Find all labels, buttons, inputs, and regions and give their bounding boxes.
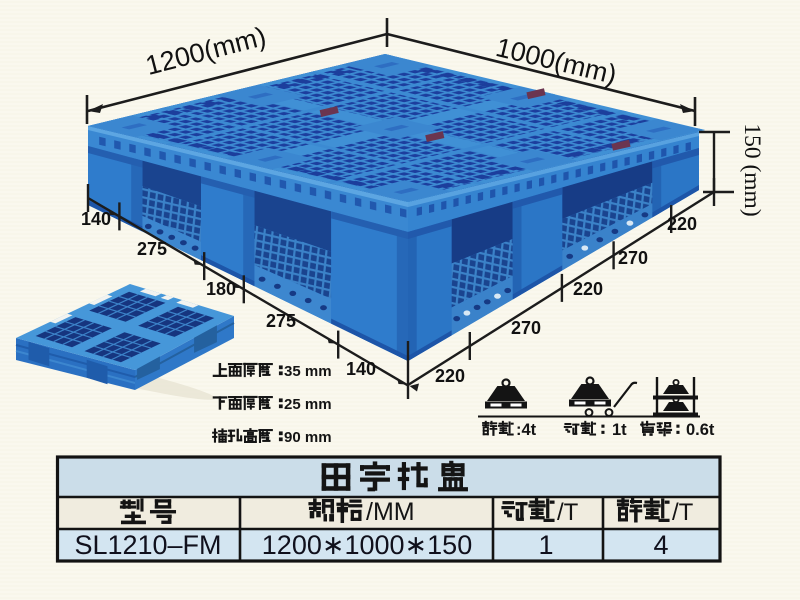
svg-text:275: 275 (266, 311, 296, 331)
svg-text:220: 220 (573, 279, 603, 299)
svg-text:220: 220 (435, 366, 465, 386)
svg-text:1t: 1t (612, 421, 627, 439)
svg-text:220: 220 (667, 214, 697, 234)
svg-text:/T: /T (557, 499, 579, 526)
svg-text::4t: :4t (516, 421, 537, 439)
svg-text:275: 275 (137, 239, 167, 259)
svg-text:25 mm: 25 mm (284, 396, 332, 413)
svg-text:270: 270 (511, 318, 541, 338)
svg-text:140: 140 (346, 359, 376, 379)
svg-text:90 mm: 90 mm (284, 429, 332, 446)
svg-text:/T: /T (672, 499, 694, 526)
svg-text:140: 140 (81, 209, 111, 229)
svg-text:/MM: /MM (366, 498, 415, 526)
svg-text:35 mm: 35 mm (284, 363, 332, 380)
svg-text:4: 4 (653, 530, 668, 560)
svg-text:1: 1 (538, 530, 553, 560)
svg-text:270: 270 (618, 248, 648, 268)
svg-text:180: 180 (206, 279, 236, 299)
svg-text:1200∗1000∗150: 1200∗1000∗150 (262, 530, 472, 560)
svg-text:SL1210–FM: SL1210–FM (74, 530, 221, 560)
svg-text:150 (mm): 150 (mm) (739, 123, 765, 216)
svg-text:0.6t: 0.6t (686, 421, 715, 439)
